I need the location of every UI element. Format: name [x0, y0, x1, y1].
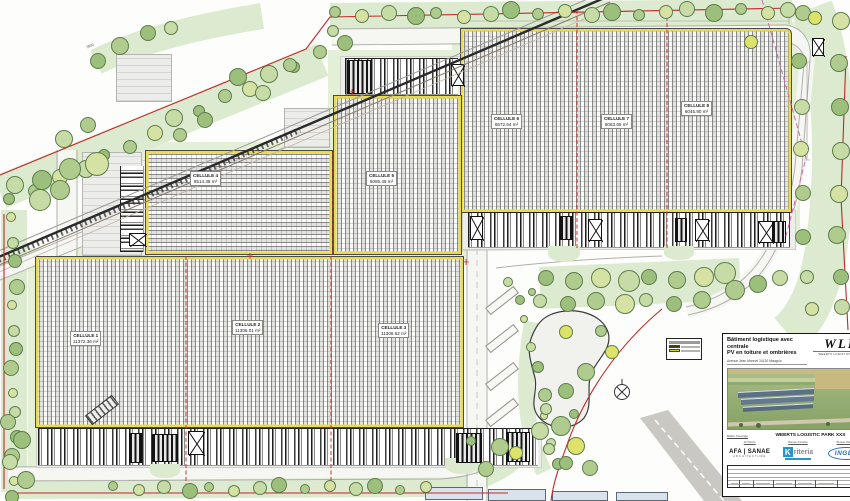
- tree-icon: [13, 431, 31, 449]
- tree-icon: [90, 53, 106, 69]
- label-cellule-8: CELLULE 86045.90 m²: [681, 101, 712, 116]
- kriteria-underline: [785, 458, 811, 460]
- tree-icon: [520, 315, 528, 323]
- tree-icon: [503, 277, 513, 287]
- tree-icon: [367, 478, 383, 494]
- tree-icon: [567, 437, 585, 455]
- label-cellule-7: CELLULE 76063.65 m²: [601, 114, 632, 129]
- tree-icon: [478, 461, 494, 477]
- tree-icon: [3, 360, 19, 376]
- tree-icon: [531, 422, 549, 440]
- tree-icon: [693, 291, 711, 309]
- tree-icon: [605, 345, 619, 359]
- tree-icon: [832, 142, 850, 160]
- tree-icon: [55, 130, 73, 148]
- partner-ingea: Bureau d'études INGEA: [824, 441, 850, 461]
- tree-icon: [532, 361, 544, 373]
- tree-icon: [9, 342, 23, 356]
- tree-icon: [794, 99, 810, 115]
- tree-icon: [565, 272, 583, 290]
- tree-icon: [526, 342, 536, 352]
- tree-icon: [300, 484, 310, 494]
- tree-icon: [805, 302, 819, 316]
- tree-icon: [255, 85, 271, 101]
- tree-icon: [111, 37, 129, 55]
- tree-icon: [603, 3, 621, 21]
- aerial-render-image: [727, 368, 850, 430]
- wlp-logo: WLP WEERTS LOGISTICS PARKS: [813, 337, 850, 365]
- tree-icon: [828, 226, 846, 244]
- tree-icon: [133, 484, 145, 496]
- tree-icon: [538, 388, 552, 402]
- label-cellule-2: CELLULE 211306.01 m²: [232, 320, 263, 335]
- boundary-magenta-dashed: [762, 0, 806, 236]
- tree-icon: [8, 325, 20, 337]
- tree-icon: [6, 212, 16, 222]
- tree-icon: [9, 279, 25, 295]
- tree-icon: [7, 237, 19, 249]
- tree-icon: [679, 1, 695, 17]
- tree-icon: [800, 270, 814, 284]
- label-cellule-4: CELLULE 48514.38 m²: [190, 171, 221, 186]
- tree-icon: [140, 25, 156, 41]
- tree-icon: [85, 152, 109, 176]
- tree-icon: [164, 21, 178, 35]
- tree-icon: [595, 325, 607, 337]
- tree-icon: [260, 65, 278, 83]
- tree-icon: [780, 2, 796, 18]
- tree-icon: [831, 98, 849, 116]
- tree-icon: [538, 270, 554, 286]
- tree-icon: [123, 140, 137, 154]
- tree-icon: [329, 6, 341, 18]
- tree-icon: [0, 414, 16, 430]
- tree-icon: [229, 68, 247, 86]
- tree-icon: [772, 270, 788, 286]
- tree-icon: [795, 229, 811, 245]
- tree-icon: [830, 185, 848, 203]
- legend-text-bar: [681, 350, 700, 352]
- partner-kriteria: Bureau d'études K riteria: [775, 441, 820, 461]
- tree-icon: [830, 54, 848, 72]
- label-cellule-1: CELLULE 111372.36 m²: [70, 331, 101, 346]
- tree-icon: [833, 269, 849, 285]
- tree-icon: [808, 11, 822, 25]
- tree-icon: [271, 477, 287, 493]
- tree-icon: [2, 454, 18, 470]
- legend-text-bar: [681, 346, 700, 348]
- tree-icon: [618, 270, 640, 292]
- tree-icon: [528, 288, 536, 296]
- tree-icon: [615, 294, 635, 314]
- tree-icon: [80, 117, 96, 133]
- tree-icon: [705, 4, 723, 22]
- legend-box: [666, 338, 702, 360]
- tree-icon: [457, 10, 471, 24]
- tree-icon: [559, 325, 573, 339]
- tree-icon: [420, 481, 432, 493]
- north-arrow-icon: [615, 379, 630, 400]
- tree-icon: [197, 112, 213, 128]
- tree-icon: [515, 295, 525, 305]
- tree-icon: [744, 35, 758, 49]
- tree-icon: [558, 4, 572, 18]
- tree-icon: [337, 35, 353, 51]
- tree-icon: [793, 141, 809, 157]
- tree-icon: [355, 9, 369, 23]
- kriteria-logo: K riteria: [783, 447, 813, 457]
- tree-icon: [182, 483, 198, 499]
- tree-icon: [108, 481, 118, 491]
- tree-icon: [834, 299, 850, 315]
- tree-icon: [591, 268, 611, 288]
- tree-icon: [8, 388, 18, 398]
- tree-icon: [791, 53, 807, 69]
- project-name: WEERTS LOGISTIC PARK XXX: [752, 433, 850, 438]
- label-cellule-3: CELLULE 311306.62 m²: [378, 323, 409, 338]
- tree-icon: [577, 363, 595, 381]
- tree-icon: [59, 158, 81, 180]
- tree-icon: [639, 293, 653, 307]
- site-plan-page: 7800 CELLULE 111372.36 m² CELLULE 211306…: [0, 0, 850, 501]
- tree-icon: [7, 300, 17, 310]
- tree-icon: [324, 480, 336, 492]
- tree-icon: [6, 176, 24, 194]
- tree-icon: [173, 128, 187, 142]
- tree-icon: [540, 403, 552, 415]
- tree-icon: [569, 409, 579, 419]
- partner-architect: Architecte AFA | SANAE ARCHITECTURE: [727, 441, 772, 461]
- tree-icon: [483, 6, 499, 22]
- tree-icon: [157, 480, 171, 494]
- title-block: Bâtiment logistique avec centrale PV en …: [722, 333, 850, 497]
- tree-icon: [327, 25, 339, 37]
- legend-swatch-dark: [669, 345, 680, 348]
- tree-icon: [165, 109, 183, 127]
- tree-icon: [509, 446, 523, 460]
- tree-icon: [584, 7, 600, 23]
- tree-icon: [8, 254, 22, 268]
- tree-icon: [666, 296, 682, 312]
- tree-icon: [218, 89, 232, 103]
- label-cellule-5: CELLULE 56085.49 m²: [366, 171, 397, 186]
- tree-icon: [558, 383, 574, 399]
- tree-icon: [466, 436, 476, 446]
- tree-icon: [582, 460, 598, 476]
- tree-icon: [29, 189, 51, 211]
- tree-icon: [551, 416, 571, 436]
- tree-icon: [725, 280, 745, 300]
- ingea-logo: INGEA: [828, 447, 850, 460]
- tree-icon: [761, 6, 775, 20]
- tree-icon: [749, 275, 767, 293]
- tree-icon: [795, 185, 811, 201]
- survey-crosses: [247, 89, 469, 265]
- tree-icon: [532, 8, 544, 20]
- label-cellule-6: CELLULE 66572.64 m²: [491, 114, 522, 129]
- tree-icon: [283, 58, 297, 72]
- tree-icon: [17, 471, 35, 489]
- legend-title-bar: [669, 341, 700, 344]
- project-owner-label: Maître d'ouvrage: [727, 434, 748, 438]
- tree-icon: [381, 5, 397, 21]
- tree-icon: [147, 125, 163, 141]
- drawing-title: Bâtiment logistique avec centrale PV en …: [727, 337, 813, 357]
- firewall-lines: [186, 10, 667, 492]
- legend-swatch-yellow: [669, 349, 680, 352]
- tree-icon: [543, 443, 555, 455]
- tree-icon: [832, 12, 850, 30]
- tree-icon: [5, 490, 19, 501]
- project-address: Avenue Jean Monnet 34130 Mauguio: [727, 359, 807, 365]
- tree-icon: [313, 45, 327, 59]
- tree-icon: [587, 292, 605, 310]
- revision-table: [727, 465, 850, 488]
- tree-icon: [491, 438, 509, 456]
- tree-icon: [3, 193, 15, 205]
- tree-icon: [533, 294, 547, 308]
- tree-icon: [559, 456, 573, 470]
- tree-icon: [50, 180, 70, 200]
